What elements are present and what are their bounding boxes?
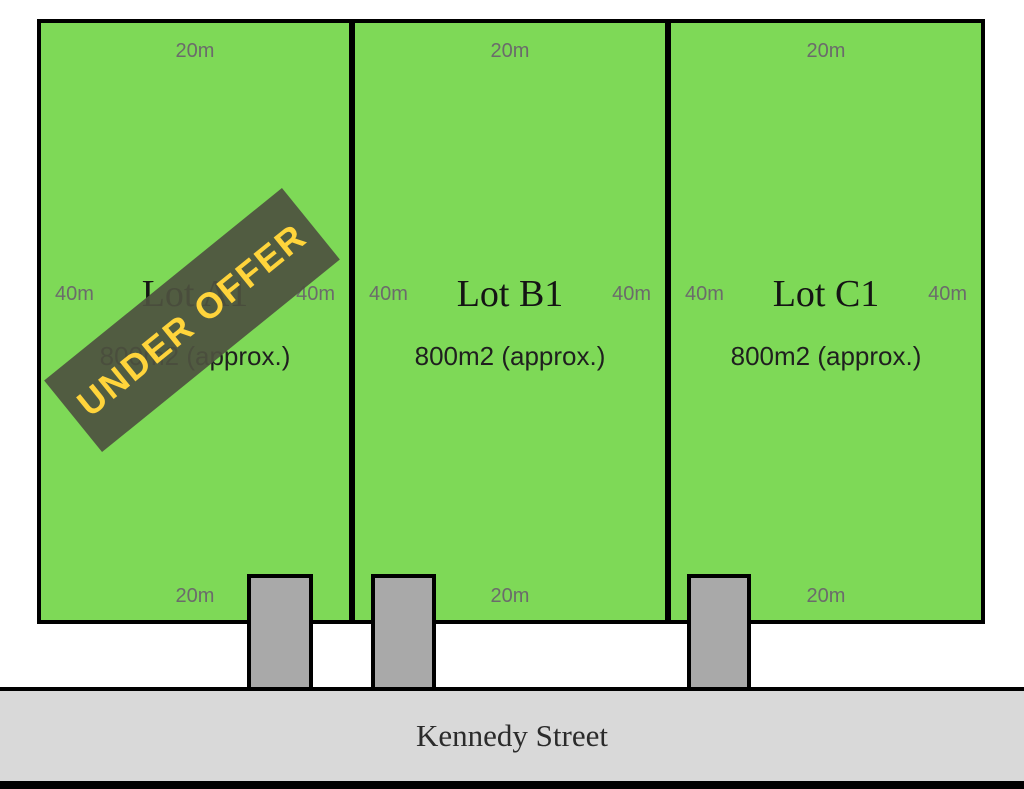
lot-c1-title: Lot C1 <box>671 274 981 314</box>
lot-c1: 20m 40m 40m Lot C1 800m2 (approx.) 20m <box>667 19 985 624</box>
subdivision-plan: 20m 40m 40m Lot A1 800m2 (approx.) 20m 2… <box>0 0 1024 789</box>
lot-b1: 20m 40m 40m Lot B1 800m2 (approx.) 20m <box>351 19 669 624</box>
street-name-label: Kennedy Street <box>416 718 608 754</box>
lot-c1-area-label: 800m2 (approx.) <box>671 343 981 369</box>
lot-b1-title: Lot B1 <box>355 274 665 314</box>
lot-b1-area-label: 800m2 (approx.) <box>355 343 665 369</box>
driveway-lot-a1 <box>247 574 313 691</box>
street-band: Kennedy Street <box>0 687 1024 789</box>
lot-b1-frontage-top-label: 20m <box>355 41 665 61</box>
driveway-lot-c1 <box>687 574 751 691</box>
lot-c1-frontage-top-label: 20m <box>671 41 981 61</box>
driveway-lot-b1 <box>371 574 436 691</box>
lot-a1-frontage-top-label: 20m <box>41 41 349 61</box>
